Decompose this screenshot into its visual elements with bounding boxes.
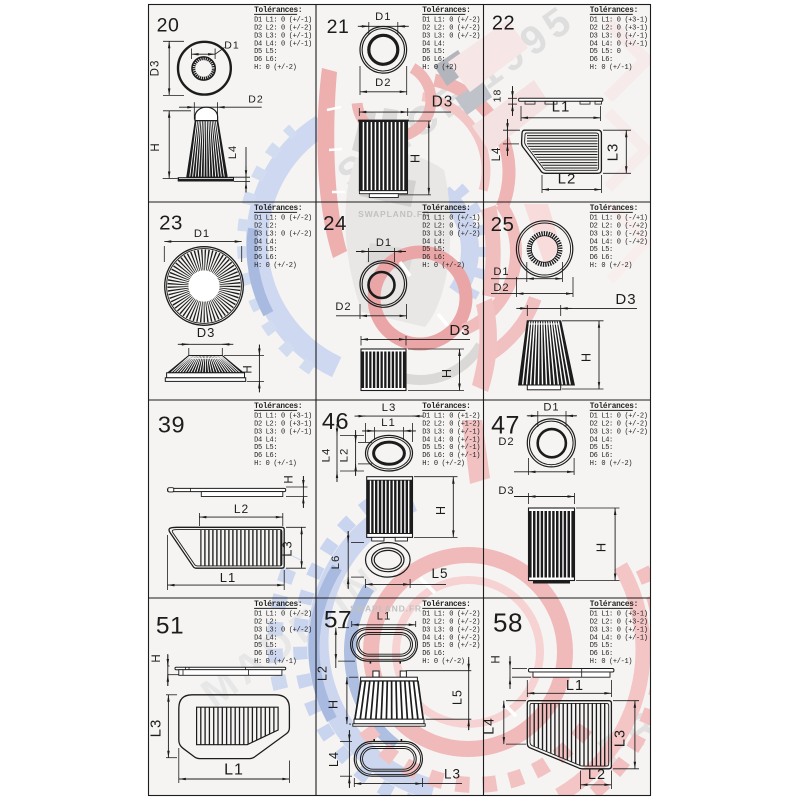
svg-text:L3: L3 <box>444 767 461 782</box>
svg-text:D1 L1: 0 (+/-2): D1 L1: 0 (+/-2) <box>254 611 312 619</box>
svg-text:D6 L6:: D6 L6: <box>590 452 613 460</box>
svg-text:21: 21 <box>327 16 350 38</box>
svg-text:H: H <box>409 153 423 163</box>
svg-text:D2 L2: 0 (+3-1): D2 L2: 0 (+3-1) <box>590 25 648 33</box>
svg-text:H: H <box>491 654 503 663</box>
svg-text:D3: D3 <box>498 485 514 497</box>
svg-text:D2: D2 <box>248 94 263 106</box>
svg-text:D3 L3: 0 (+/-2): D3 L3: 0 (+/-2) <box>590 428 648 436</box>
svg-text:L3: L3 <box>280 540 295 556</box>
svg-text:D5 L5:: D5 L5: <box>254 642 277 650</box>
svg-text:D6 L6:: D6 L6: <box>254 254 277 262</box>
svg-text:D1 L1: 0 (+/-1): D1 L1: 0 (+/-1) <box>254 17 312 25</box>
svg-text:H: H <box>151 653 163 662</box>
svg-text:D2 L2: 0 (+/-2): D2 L2: 0 (+/-2) <box>422 619 480 627</box>
svg-text:D2 L2:: D2 L2: <box>254 223 277 231</box>
svg-text:L4: L4 <box>491 147 503 162</box>
svg-text:L3: L3 <box>382 402 397 414</box>
svg-text:D2 L2: 0 (+3-2): D2 L2: 0 (+3-2) <box>590 619 648 627</box>
svg-text:D1: D1 <box>194 228 210 240</box>
svg-text:D5 L5:: D5 L5: <box>422 48 445 56</box>
svg-text:D5 L5:: D5 L5: <box>422 246 445 254</box>
svg-text:D5 L5: 0 (+/-2): D5 L5: 0 (+/-2) <box>422 642 480 650</box>
svg-text:D2: D2 <box>335 301 351 313</box>
svg-text:L1: L1 <box>381 417 396 429</box>
svg-text:D2 L2: 0 (+/-2): D2 L2: 0 (+/-2) <box>422 223 480 231</box>
svg-text:D3 L3: 0 (+/-2): D3 L3: 0 (+/-2) <box>254 626 312 634</box>
svg-text:L1: L1 <box>377 611 392 623</box>
svg-text:D3 L3: 0 (+/-1): D3 L3: 0 (+/-1) <box>590 626 648 634</box>
svg-text:D5 L5:: D5 L5: <box>254 444 277 452</box>
svg-text:D6 L6:: D6 L6: <box>590 254 613 262</box>
svg-text:H: H <box>284 474 296 483</box>
svg-text:39: 39 <box>158 412 185 438</box>
svg-text:D4 L4: 0 (+/-1): D4 L4: 0 (+/-1) <box>422 436 480 444</box>
svg-text:L1: L1 <box>220 570 236 585</box>
svg-text:H: 0 (+/-1): H: 0 (+/-1) <box>590 658 633 666</box>
svg-text:D5 L5:: D5 L5: <box>254 48 277 56</box>
svg-text:D4 L4: 0 (+/-2): D4 L4: 0 (+/-2) <box>422 634 480 642</box>
svg-text:SWAPLAND.FR: SWAPLAND.FR <box>358 209 430 219</box>
svg-text:D6 L6:: D6 L6: <box>254 56 277 64</box>
svg-text:L2: L2 <box>339 448 351 463</box>
svg-text:D6 L6:: D6 L6: <box>254 650 277 658</box>
svg-text:H: 0 (+/-2): H: 0 (+/-2) <box>422 262 465 270</box>
svg-text:D2: D2 <box>493 282 509 294</box>
svg-text:L4: L4 <box>481 717 497 735</box>
svg-text:51: 51 <box>156 613 184 640</box>
svg-text:L3: L3 <box>605 143 622 162</box>
svg-text:46: 46 <box>322 408 349 434</box>
svg-text:D1 L1: 0 (+/-2): D1 L1: 0 (+/-2) <box>422 17 480 25</box>
svg-text:23: 23 <box>159 212 183 235</box>
svg-text:20: 20 <box>157 15 180 37</box>
svg-text:D2 L2: 0 (-/+2): D2 L2: 0 (-/+2) <box>590 223 648 231</box>
svg-text:D3 L3: 0 (+/-1): D3 L3: 0 (+/-1) <box>254 32 312 40</box>
svg-text:25: 25 <box>491 213 515 236</box>
svg-text:D6 L6:: D6 L6: <box>590 56 613 64</box>
svg-text:D5 L5: 0: D5 L5: 0 <box>590 48 621 56</box>
svg-text:L3: L3 <box>613 729 629 747</box>
svg-text:D2 L2: 0 (+3-1): D2 L2: 0 (+3-1) <box>254 421 312 429</box>
svg-text:D2 L2: 0 (+1-2): D2 L2: 0 (+1-2) <box>422 421 480 429</box>
svg-text:D1 L1: 0 (+3-1): D1 L1: 0 (+3-1) <box>590 17 648 25</box>
svg-text:D4 L4:: D4 L4: <box>254 238 277 246</box>
svg-text:H: H <box>243 364 255 373</box>
svg-text:D1 L1: 0 (+1-2): D1 L1: 0 (+1-2) <box>422 413 480 421</box>
svg-text:D3: D3 <box>449 322 470 339</box>
svg-text:H: 0 (+/-2): H: 0 (+/-2) <box>254 64 297 72</box>
svg-text:D4 L4: 0 (+/-1): D4 L4: 0 (+/-1) <box>590 634 648 642</box>
svg-text:H: 0 (+/-1): H: 0 (+/-1) <box>590 64 633 72</box>
svg-text:H: 0 (+/-2): H: 0 (+/-2) <box>590 262 633 270</box>
svg-text:H: 0 (+/-1): H: 0 (+/-1) <box>254 658 297 666</box>
svg-text:D5 L5:: D5 L5: <box>590 246 613 254</box>
svg-text:D4 L4:: D4 L4: <box>422 40 445 48</box>
svg-text:H: 0 (+/-1): H: 0 (+/-1) <box>254 460 297 468</box>
svg-text:D1 L1: 0 (+3-1): D1 L1: 0 (+3-1) <box>254 413 312 421</box>
svg-text:L5: L5 <box>431 566 448 581</box>
svg-text:57: 57 <box>324 607 352 634</box>
svg-text:D6 L6:: D6 L6: <box>422 56 445 64</box>
svg-text:D5 L5:: D5 L5: <box>254 246 277 254</box>
svg-text:H: H <box>440 368 454 378</box>
svg-text:L1: L1 <box>566 678 584 694</box>
svg-text:D3 L3: 0 (+/-1): D3 L3: 0 (+/-1) <box>590 32 648 40</box>
svg-text:L4: L4 <box>227 145 239 159</box>
svg-text:D5 L5:: D5 L5: <box>590 642 613 650</box>
svg-text:D6 L6:: D6 L6: <box>422 650 445 658</box>
svg-text:L4: L4 <box>327 751 341 767</box>
svg-text:H: H <box>580 352 594 362</box>
svg-text:24: 24 <box>323 212 347 235</box>
svg-text:L1: L1 <box>224 762 244 779</box>
svg-text:D4 L4: 0 (-/+2): D4 L4: 0 (-/+2) <box>590 238 648 246</box>
svg-text:D4 L4: 0 (+/-1): D4 L4: 0 (+/-1) <box>254 40 312 48</box>
svg-text:D2: D2 <box>498 436 514 448</box>
svg-text:H: 0 (+2): H: 0 (+2) <box>422 64 457 72</box>
svg-text:D1 L1: 0 (+/-2): D1 L1: 0 (+/-2) <box>254 215 312 223</box>
svg-text:22: 22 <box>492 13 515 35</box>
svg-text:H: 0 (+/-2): H: 0 (+/-2) <box>422 460 465 468</box>
svg-text:18: 18 <box>492 89 504 103</box>
svg-text:D2 L2: 0 (+/-2): D2 L2: 0 (+/-2) <box>422 25 480 33</box>
svg-text:D3: D3 <box>150 60 162 77</box>
svg-text:D1 L1: 0 (+3-1): D1 L1: 0 (+3-1) <box>590 611 648 619</box>
svg-text:D2 L2: 0 (+/-2): D2 L2: 0 (+/-2) <box>254 25 312 33</box>
svg-text:L6: L6 <box>330 555 342 570</box>
svg-text:D3 L3: 0 (+/-2): D3 L3: 0 (+/-2) <box>254 230 312 238</box>
svg-text:D1: D1 <box>376 237 392 249</box>
svg-text:L2: L2 <box>234 502 249 516</box>
svg-text:D3: D3 <box>432 94 454 111</box>
svg-text:D1 L1: 0 (+/-1): D1 L1: 0 (+/-1) <box>422 215 480 223</box>
svg-text:D3 L3: 0 (+/-2): D3 L3: 0 (+/-2) <box>422 230 480 238</box>
svg-text:D5 L5: 0 (+/-1): D5 L5: 0 (+/-1) <box>422 444 480 452</box>
svg-text:L5: L5 <box>451 689 465 705</box>
svg-text:D4 L4:: D4 L4: <box>254 634 277 642</box>
svg-text:H: 0 (+/-2): H: 0 (+/-2) <box>422 658 465 666</box>
svg-text:D6 L6:: D6 L6: <box>422 254 445 262</box>
svg-text:H: H <box>150 142 162 151</box>
svg-text:D1: D1 <box>224 40 239 52</box>
svg-text:D1 L1: 0 (+/-2): D1 L1: 0 (+/-2) <box>590 413 648 421</box>
svg-text:L4: L4 <box>321 448 333 463</box>
svg-text:D6 L6: 0 (+/-1): D6 L6: 0 (+/-1) <box>422 452 480 460</box>
svg-text:D3: D3 <box>197 325 216 340</box>
svg-text:58: 58 <box>493 608 523 638</box>
svg-text:D2 L2:: D2 L2: <box>254 619 277 627</box>
svg-text:D4 L4:: D4 L4: <box>422 238 445 246</box>
svg-text:H: 0 (+/-2): H: 0 (+/-2) <box>590 460 633 468</box>
svg-text:L2: L2 <box>558 171 577 188</box>
svg-text:L1: L1 <box>552 99 571 116</box>
svg-text:D2 L2: 0 (+/-2): D2 L2: 0 (+/-2) <box>590 421 648 429</box>
svg-text:D4 L4:: D4 L4: <box>590 436 613 444</box>
svg-text:L3: L3 <box>148 719 165 738</box>
svg-text:D3 L3: 0 (-/+2): D3 L3: 0 (-/+2) <box>590 230 648 238</box>
svg-text:D3 L3: 0 (+/-1): D3 L3: 0 (+/-1) <box>254 428 312 436</box>
svg-text:D3: D3 <box>615 291 636 308</box>
svg-text:D5 L5:: D5 L5: <box>590 444 613 452</box>
svg-text:H: H <box>327 699 341 709</box>
svg-text:H: H <box>594 542 609 552</box>
svg-text:D4 L4:: D4 L4: <box>254 436 277 444</box>
svg-text:D3 L3: 0 (+/-2): D3 L3: 0 (+/-2) <box>422 626 480 634</box>
svg-text:D2: D2 <box>375 77 391 89</box>
svg-text:D3 L3: 0 (+/-2): D3 L3: 0 (+/-2) <box>422 32 480 40</box>
svg-text:L2: L2 <box>588 767 606 783</box>
svg-text:D3 L3: 0 (+/-1): D3 L3: 0 (+/-1) <box>422 428 480 436</box>
svg-text:D4 L4: 0 (+/-1): D4 L4: 0 (+/-1) <box>590 40 648 48</box>
svg-text:D1: D1 <box>543 402 559 414</box>
svg-text:D6 L6:: D6 L6: <box>590 650 613 658</box>
svg-text:D1: D1 <box>493 266 509 278</box>
svg-text:D1 L1: 0 (+/-2): D1 L1: 0 (+/-2) <box>422 611 480 619</box>
svg-text:D1 L1: 0 (-/+1): D1 L1: 0 (-/+1) <box>590 215 648 223</box>
svg-text:D6 L6:: D6 L6: <box>254 452 277 460</box>
svg-text:H: 0 (+/-2): H: 0 (+/-2) <box>254 262 297 270</box>
svg-text:D1: D1 <box>375 11 391 23</box>
svg-text:L2: L2 <box>316 665 330 681</box>
svg-text:H: H <box>434 505 448 515</box>
